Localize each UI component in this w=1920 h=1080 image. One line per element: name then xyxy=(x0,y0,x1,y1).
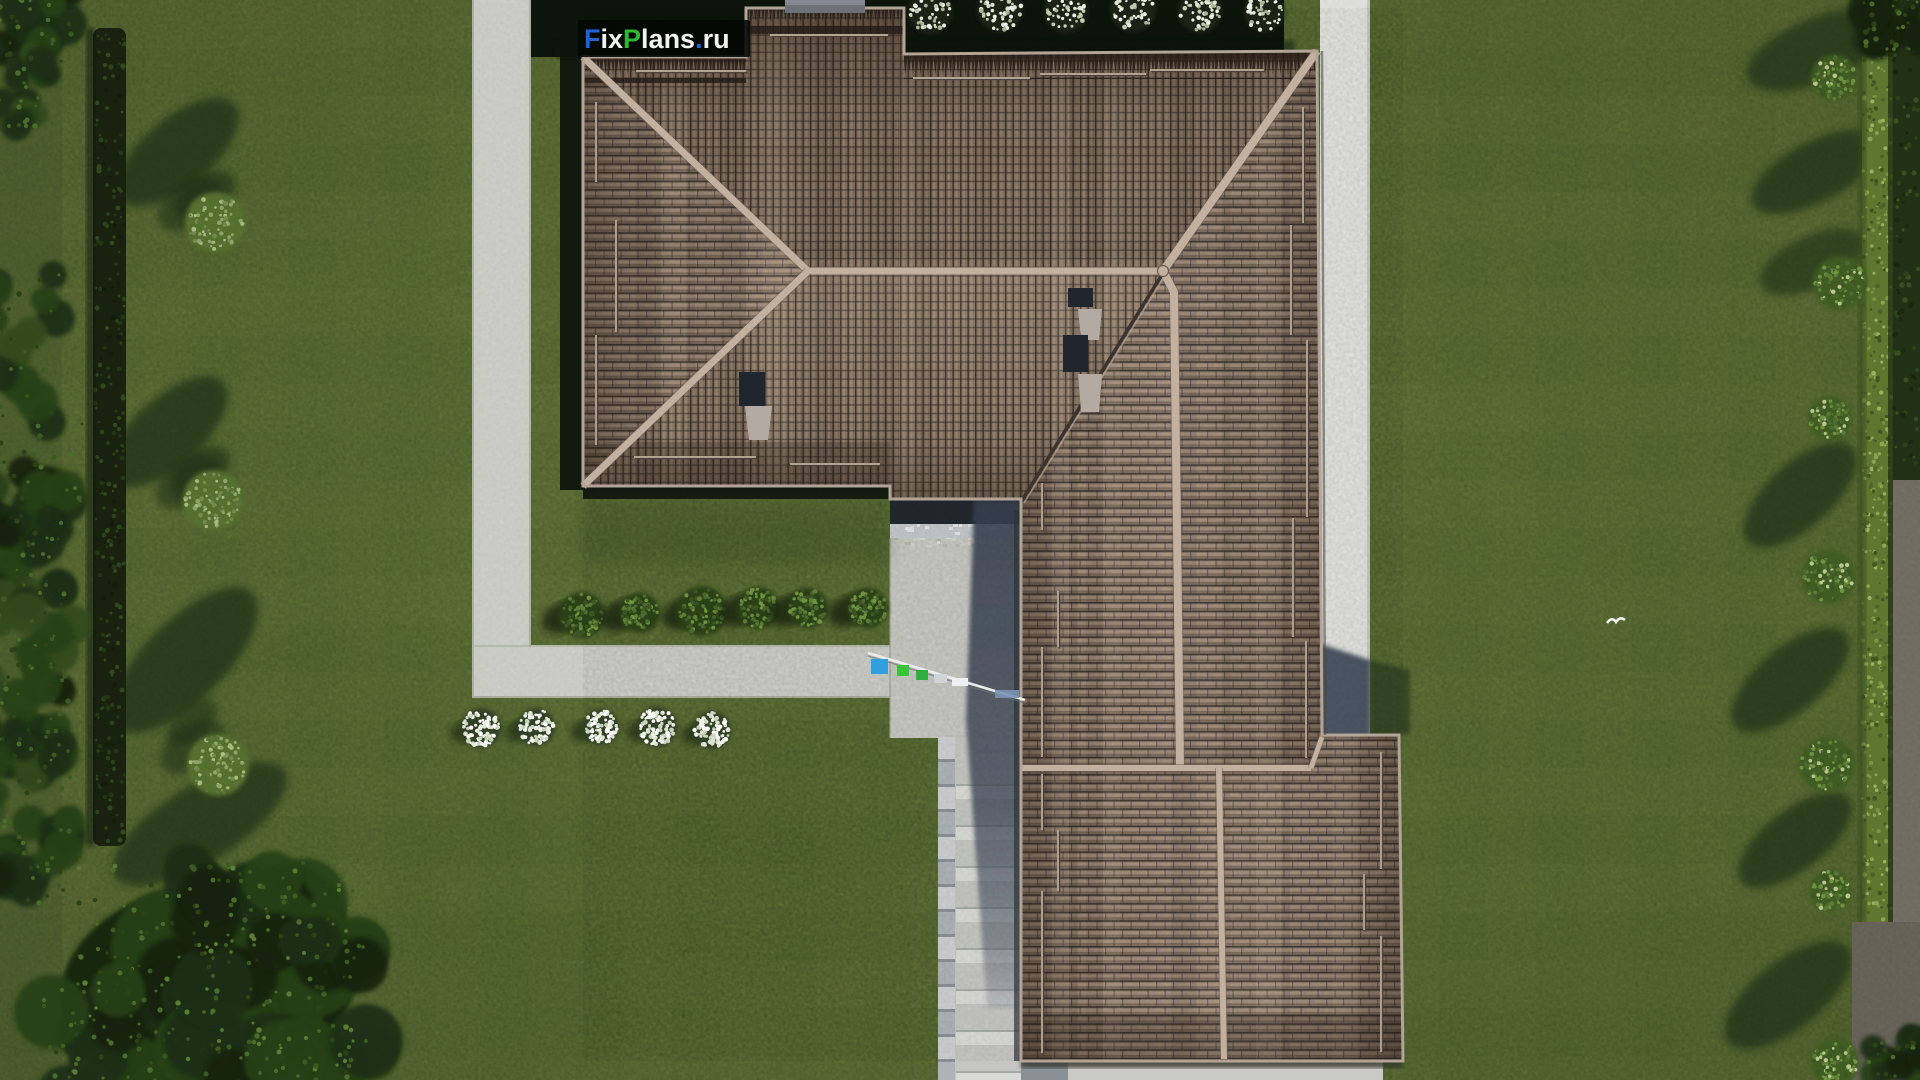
svg-text:FixPlans.ru: FixPlans.ru xyxy=(584,24,730,54)
